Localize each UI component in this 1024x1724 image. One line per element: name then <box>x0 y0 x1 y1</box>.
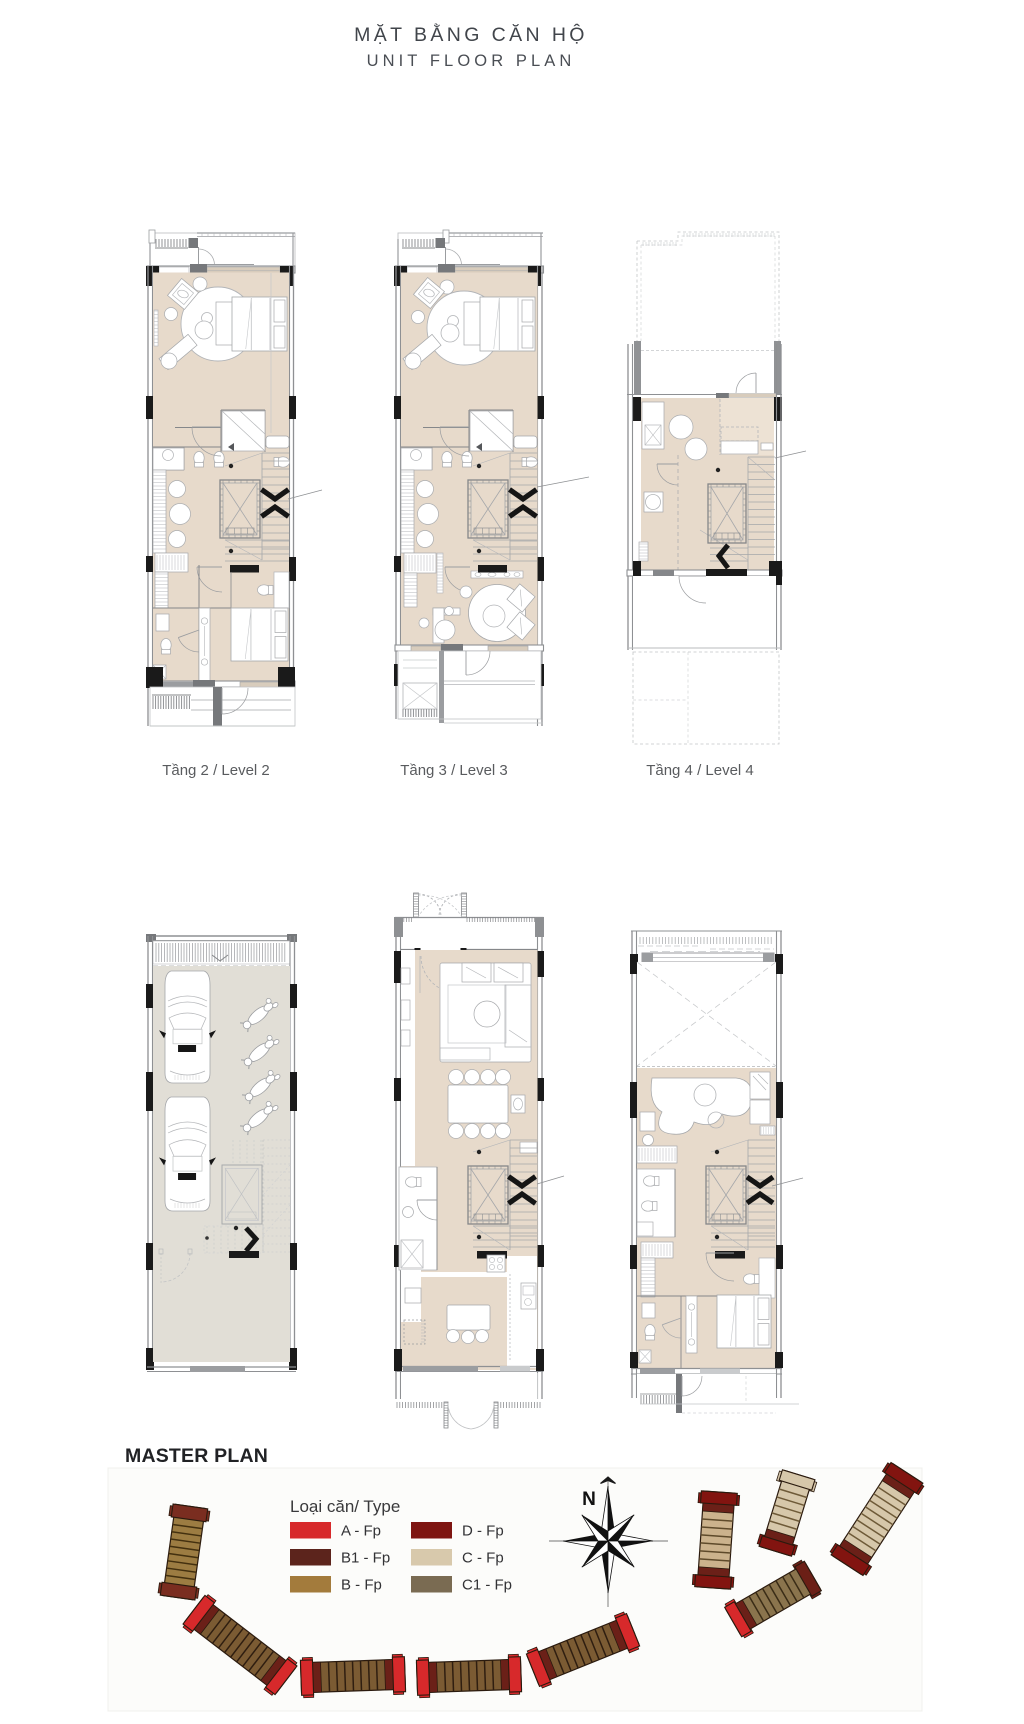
svg-text:Tầng 2 / Level 2: Tầng 2 / Level 2 <box>162 762 270 779</box>
svg-text:Tầng 3 / Level 3: Tầng 3 / Level 3 <box>400 762 508 779</box>
svg-text:C - Fp: C - Fp <box>462 1550 504 1567</box>
svg-text:A - Fp: A - Fp <box>341 1523 381 1540</box>
svg-text:D - Fp: D - Fp <box>462 1523 504 1540</box>
svg-text:MASTER PLAN: MASTER PLAN <box>125 1445 268 1467</box>
svg-text:MẶT BẰNG CĂN HỘ: MẶT BẰNG CĂN HỘ <box>354 22 588 46</box>
svg-text:Loại căn/ Type: Loại căn/ Type <box>290 1497 400 1516</box>
svg-text:C1 - Fp: C1 - Fp <box>462 1577 512 1594</box>
svg-text:UNIT FLOOR PLAN: UNIT FLOOR PLAN <box>367 52 576 70</box>
svg-text:B - Fp: B - Fp <box>341 1577 382 1594</box>
svg-text:Tầng 4 / Level 4: Tầng 4 / Level 4 <box>646 762 754 779</box>
svg-text:N: N <box>582 1489 596 1510</box>
svg-text:B1 - Fp: B1 - Fp <box>341 1550 390 1567</box>
